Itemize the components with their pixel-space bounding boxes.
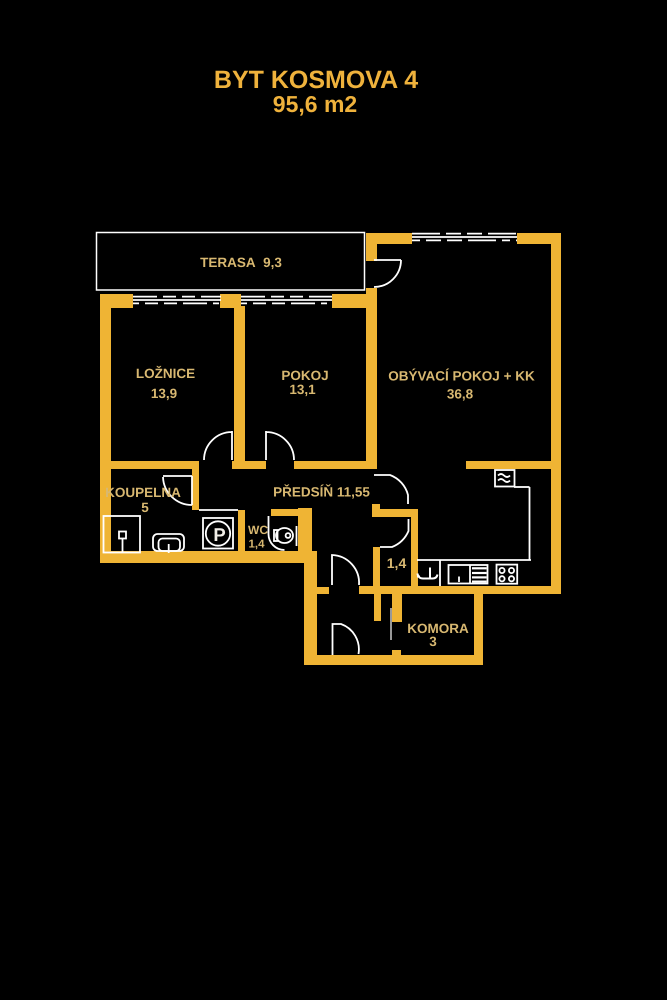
svg-text:36,8: 36,8 (447, 387, 474, 402)
svg-text:P: P (213, 524, 225, 545)
svg-text:BYT KOSMOVA 4: BYT KOSMOVA 4 (214, 66, 418, 94)
svg-text:1,4: 1,4 (387, 555, 407, 571)
svg-text:KOMORA: KOMORA (407, 621, 469, 636)
svg-text:KOUPELNA: KOUPELNA (105, 485, 181, 500)
svg-text:13,9: 13,9 (151, 386, 177, 401)
svg-text:1,4: 1,4 (249, 539, 266, 551)
svg-text:3: 3 (429, 634, 437, 649)
svg-text:LOŽNICE: LOŽNICE (136, 365, 195, 381)
svg-text:PŘEDSÍŇ 11,55: PŘEDSÍŇ 11,55 (273, 484, 370, 500)
svg-text:WC: WC (248, 523, 268, 537)
svg-text:95,6 m2: 95,6 m2 (273, 91, 357, 117)
svg-text:13,1: 13,1 (289, 382, 316, 397)
svg-text:POKOJ: POKOJ (281, 368, 328, 383)
svg-text:TERASA 9,3: TERASA 9,3 (200, 255, 282, 270)
svg-text:5: 5 (141, 500, 149, 515)
svg-text:OBÝVACÍ POKOJ + KK: OBÝVACÍ POKOJ + KK (388, 369, 535, 384)
